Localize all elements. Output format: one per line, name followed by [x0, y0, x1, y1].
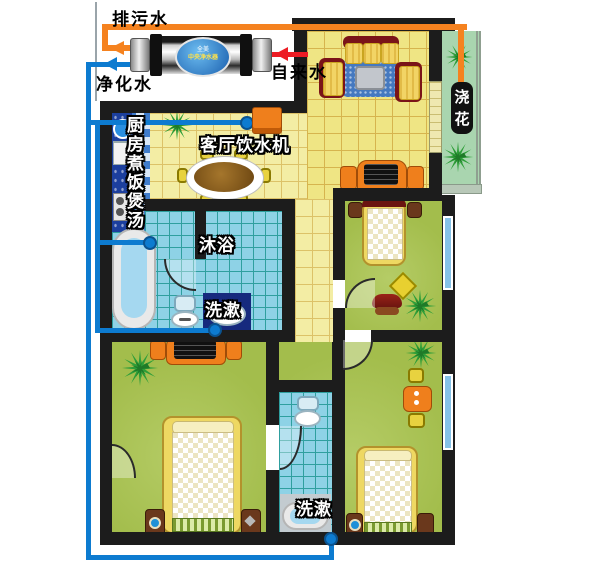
wall-living-right-upper — [429, 31, 442, 81]
balcony-flowers-label: 浇花 — [451, 82, 473, 134]
tv-screen-2 — [174, 340, 216, 359]
clean-pipe-bottom — [86, 555, 334, 560]
coffee-table — [355, 66, 385, 90]
bed3-mattress — [364, 460, 412, 524]
bed1-mattress — [367, 208, 403, 260]
plant-icon — [402, 288, 438, 324]
wash-main-label: 洗漱 — [205, 296, 241, 321]
wall-bath2-right — [332, 342, 345, 533]
nightstand-lamp — [349, 519, 361, 531]
clean-arrow — [104, 57, 117, 71]
wash2-connection-dot — [324, 532, 338, 546]
stove-burner — [116, 197, 124, 205]
window-bedroom1 — [443, 216, 453, 290]
bed1-ottoman-base — [375, 307, 399, 315]
stool — [408, 368, 424, 383]
table-dot — [414, 400, 419, 405]
shower-connection-dot — [143, 236, 157, 250]
wall-bedroom1-left-upper — [333, 188, 345, 280]
clean-pipe-wash1-branch — [95, 328, 215, 333]
sofa-cushion — [363, 43, 381, 64]
toilet-2-base — [294, 410, 321, 427]
clean-pipe-shower-branch — [95, 240, 150, 245]
toilet-1-slot — [179, 318, 191, 321]
water-dispenser — [252, 107, 282, 134]
plant-icon — [441, 140, 475, 174]
tv-side-chair — [340, 166, 357, 190]
table-dot — [414, 391, 419, 396]
dining-table-top — [194, 162, 254, 192]
stove-burner — [116, 208, 124, 216]
filter-model-text: 中央净水器 — [177, 54, 229, 61]
drain-arrow — [110, 41, 124, 55]
wash-secondary-label: 洗漱 — [296, 495, 332, 520]
kitchen-use-label: 厨房煮饭煲汤 — [127, 117, 147, 231]
filter-end-cap — [130, 38, 150, 72]
clean-pipe-dispenser-branch — [86, 120, 247, 125]
tap-water-label: 自来水 — [271, 58, 328, 83]
nightstand — [407, 202, 422, 218]
toilet-2-lid — [297, 396, 319, 411]
hall-floor — [295, 199, 333, 342]
drain-water-label: 排污水 — [112, 5, 169, 30]
drain-pipe-down-balcony — [458, 24, 464, 82]
sofa-cushion — [381, 43, 399, 64]
bed2-mattress — [172, 432, 234, 520]
wall-bath2-left-lower — [266, 470, 279, 533]
bathtub-1-water — [121, 238, 147, 318]
bed1-ottoman — [372, 294, 402, 308]
floor-plan: 全美 中央净水器 排污水 净化水 自来水 厨房煮饭煲汤 客厅饮水机 沐浴 洗漱 … — [0, 0, 600, 580]
wash1-connection-dot — [208, 323, 222, 337]
balcony-rail — [438, 184, 482, 194]
tv-screen-1 — [364, 164, 398, 185]
wall-bath1-right — [282, 199, 295, 342]
wall-left — [100, 101, 112, 545]
wall-bedroom1-bottom — [371, 330, 442, 342]
toilet-1-lid — [174, 295, 196, 312]
filter-band — [240, 34, 252, 76]
wall-bedroom1-left-lower — [333, 308, 345, 342]
wall-bath2-top — [266, 380, 345, 392]
bed2-foot-blanket — [172, 518, 234, 532]
filter-brand-badge: 全美 中央净水器 — [175, 37, 231, 77]
nightstand — [348, 202, 363, 218]
wall-bedroom1-top — [333, 188, 442, 201]
sofa-cushion — [345, 43, 363, 64]
small-table — [403, 386, 432, 412]
filter-end-cap — [252, 38, 272, 72]
tv-side-chair — [226, 340, 242, 360]
shower-label: 沐浴 — [199, 231, 235, 256]
dispenser-label: 客厅饮水机 — [200, 131, 290, 156]
tv-side-chair — [407, 166, 424, 190]
window-bedroom3 — [443, 374, 453, 450]
stool — [408, 413, 425, 428]
balcony-door — [429, 81, 442, 153]
purified-water-label: 净化水 — [96, 70, 153, 95]
wall-bottom — [100, 532, 455, 545]
wall-bath1-top — [145, 199, 295, 211]
plant-icon — [120, 348, 160, 388]
sofa-right-cushion — [399, 66, 420, 100]
clean-pipe-main-vertical — [86, 62, 91, 560]
nightstand-lamp — [149, 517, 161, 529]
filter-brand-text: 全美 — [177, 46, 229, 54]
plant-icon — [160, 108, 194, 142]
clean-pipe-branch-vertical — [95, 120, 100, 333]
